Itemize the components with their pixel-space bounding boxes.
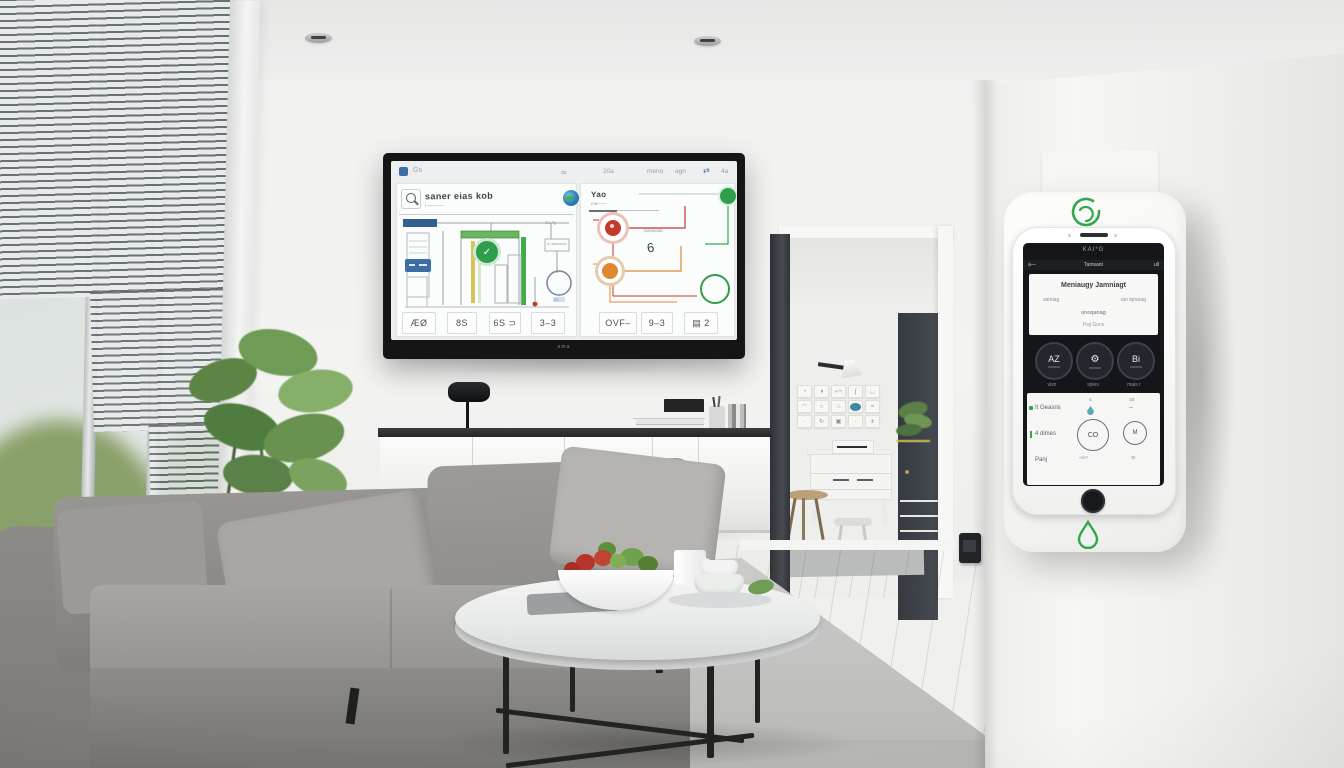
device-screen: KAI*G a— Tamsant ull Meniaugy Jamniagt s… [1023,243,1164,486]
sensor-row: Panj [1035,457,1047,463]
magazine-stack [633,412,705,418]
topbar-label: Gs [413,167,422,174]
center-bottom-label: ‹on? [1079,455,1088,460]
dashboard-card[interactable]: 6S ⊃ [489,312,521,334]
tile-icon: ◔ [803,389,807,395]
gallery-tile: ± [865,415,880,428]
device-brand: KAI*G [1023,247,1164,253]
info-line2-right: ran iqnarag [1121,297,1146,303]
panel-title: saner eias kob [425,191,493,202]
desk-typewriter [832,440,874,454]
info-line1: Meniaugy Jamniagt [1029,282,1158,289]
right-bottom-label: W [1131,455,1135,460]
gallery-tile: ʃ [848,385,863,398]
tile-icon: ◠ [802,403,807,410]
wardrobe-knob [905,470,909,474]
dashboard-card[interactable]: ÆØ [402,312,436,334]
feature-tile-check[interactable]: AZ [1035,342,1073,380]
tag-label: a1 [554,297,559,302]
tile-icon: ◑ [820,389,824,395]
tile-icon: ▣ [836,418,842,425]
magazine-stack [636,419,704,424]
mount-top-bracket [1042,150,1158,196]
stool-leg [802,498,805,542]
tile-label: spies [1076,382,1110,388]
topbar-center: da [561,170,567,176]
gallery-tile: · [797,415,812,428]
tile-icon: ◡ [870,388,875,395]
desk-handle [857,479,873,481]
ceiling-wall-junction [250,100,970,106]
alert-ring-orange [598,259,622,283]
wave-icon: ~ [1129,405,1133,412]
tv-shadow [392,356,732,376]
tv-left-panel: saner eias kob i ——·— 3a 4g [396,183,577,337]
camera-dot [1068,234,1071,237]
venetian-blind[interactable] [0,0,236,299]
green-bar-icon [1030,431,1032,438]
gauge-label: M [1133,430,1138,436]
gallery-tile: · [848,415,863,428]
right-top-label: 1B [1129,397,1135,402]
gallery-tile: ○ [814,400,829,413]
device-info-card: Meniaugy Jamniagt samiag ran iqnarag uno… [1029,274,1158,335]
dashboard-card[interactable]: 9–3 [641,312,673,334]
wall-tv: Gs da 20a meno agn ⇄ 4a saner eias kob i… [383,153,745,359]
card-label: 8S [456,318,468,328]
card-label: ▤ 2 [692,318,710,329]
topbar-item[interactable]: meno [647,168,663,175]
gallery-tile: ◑ [814,385,829,398]
co2-gauge: CO [1077,419,1109,451]
camera-dot [1114,234,1117,237]
tile-icon: ≈ [871,404,874,410]
tile-icon: ⌐¬ [835,389,842,395]
pen-cup [709,406,725,430]
ceiling-spotlight [305,33,332,43]
check-icon: AZ [1048,354,1060,364]
gallery-tile-teal [848,400,863,413]
feature-tile-gear[interactable]: ⚙ [1076,342,1114,380]
info-line3: unoqanag [1029,310,1158,316]
info-line2-left: samiag [1043,297,1059,303]
tv-screen: Gs da 20a meno agn ⇄ 4a saner eias kob i… [391,161,737,340]
mode-gauge: M [1123,421,1147,445]
info-line4: Paij Guns [1029,322,1158,328]
topbar-item: 20a [603,168,614,175]
droplet-logo-icon [1074,519,1102,549]
divider [399,214,574,215]
droplet-icon [1087,406,1094,415]
tile-label: mais r [1117,382,1151,388]
gallery-tile: ⌐¬ [831,385,846,398]
gallery-tile: ▣ [831,415,846,428]
gallery-tile: ◔ [797,385,812,398]
gallery-tile: ∴ [831,400,846,413]
gallery-tile: ◡ [865,385,880,398]
alert-ring-red [600,215,626,241]
status-right: ull [1154,262,1159,268]
flow-note: falviaisab [644,228,663,233]
sideboard-lamp-stem [466,400,469,430]
search-icon [406,193,416,203]
smart-thermostat-device: KAI*G a— Tamsant ull Meniaugy Jamniagt s… [1012,227,1176,515]
topbar-item[interactable]: agn [675,168,686,175]
wall-lamp-arm [818,362,845,370]
card-label: OVF– [605,318,631,328]
gallery-tile: ◠ [797,400,812,413]
gauge-label: CO [1088,432,1099,439]
tile-icon: ↻ [819,418,824,425]
speaker-slot [1080,233,1108,237]
tile-icon: · [855,419,857,425]
sensor-row: It Geasns [1035,405,1061,411]
status-center: Tamsant [1023,262,1164,268]
tile-icon: ± [871,419,874,425]
switch-toggle [963,540,976,552]
sync-icon[interactable]: ⇄ [703,166,710,175]
gallery-wall: ◔ ◑ ⌐¬ ʃ ◡ ◠ ○ ∴ ≈ · ↻ ▣ · ± [797,385,880,428]
device-sensor-panel: It Geasns 4 dimes Panj a CO ‹on? 1B ~ M … [1027,393,1160,485]
tile-icon: ∴ [837,403,841,410]
gear-icon: ⚙ [1091,354,1100,365]
green-ring [700,274,730,304]
shelf-line [900,530,938,532]
desk-leg [881,498,888,526]
tile-icon: ʃ [855,389,856,395]
globe-icon [563,190,579,206]
device-status-bar: a— Tamsant ull [1023,260,1164,270]
card-label: ÆØ [410,318,427,328]
interior-ceiling [788,238,938,308]
wood-stool-seat [786,490,828,500]
card-label: 9–3 [649,318,666,328]
app-icon[interactable] [399,167,408,176]
light-switch [959,533,981,563]
home-button[interactable] [1081,489,1105,513]
pen [712,397,715,407]
sensor-row: 4 dimes [1035,431,1056,437]
tv-brand: ema [383,344,745,350]
card-label: 3–3 [540,318,557,328]
shelf-line [900,500,938,502]
dashboard-card[interactable]: ▤ 2 [684,312,718,334]
sideboard-lamp-shade [448,382,490,402]
living-room-scene: ◔ ◑ ⌐¬ ʃ ◡ ◠ ○ ∴ ≈ · ↻ ▣ · ± [0,0,1344,768]
tile-label: visn [1035,382,1069,388]
green-status-dot [720,188,736,204]
desk-handle [833,479,849,481]
gallery-tile: ≈ [865,400,880,413]
sideboard-countertop [378,428,772,437]
interior-plant [896,396,932,444]
green-status-badge: ✓ [473,238,501,266]
search-box[interactable] [401,189,421,209]
cushion-seam [390,589,392,673]
upright-books [728,404,746,430]
gallery-tile: ↻ [814,415,829,428]
center-top-label: a [1089,397,1092,402]
pipe-label: a.nasemas [547,241,567,246]
tile-icon: · [804,419,806,425]
fruit-bowl [558,540,676,612]
grid-icon: Bi [1132,354,1140,364]
ceiling-spotlight [694,36,721,46]
card-label: 6S ⊃ [493,318,516,329]
tile-icon: ○ [820,404,824,410]
dashboard-card[interactable]: 3–3 [531,312,565,334]
topbar-value: 4a [721,168,728,175]
floorplan-schematic [399,217,574,321]
green-dot-icon [1029,406,1033,410]
shelf-line [900,515,938,517]
baseboard [740,540,955,550]
badge-glyph: ✓ [483,247,491,258]
dashboard-card[interactable]: 8S [447,312,477,334]
black-radio-box [664,399,704,413]
dashboard-card[interactable]: OVF– [599,312,637,334]
feature-tile-grid[interactable]: Bi [1117,342,1155,380]
tv-right-panel: Yao ma—— [580,183,735,337]
bowl-body [558,570,674,610]
panel-subtitle: i ——·— [425,203,444,209]
